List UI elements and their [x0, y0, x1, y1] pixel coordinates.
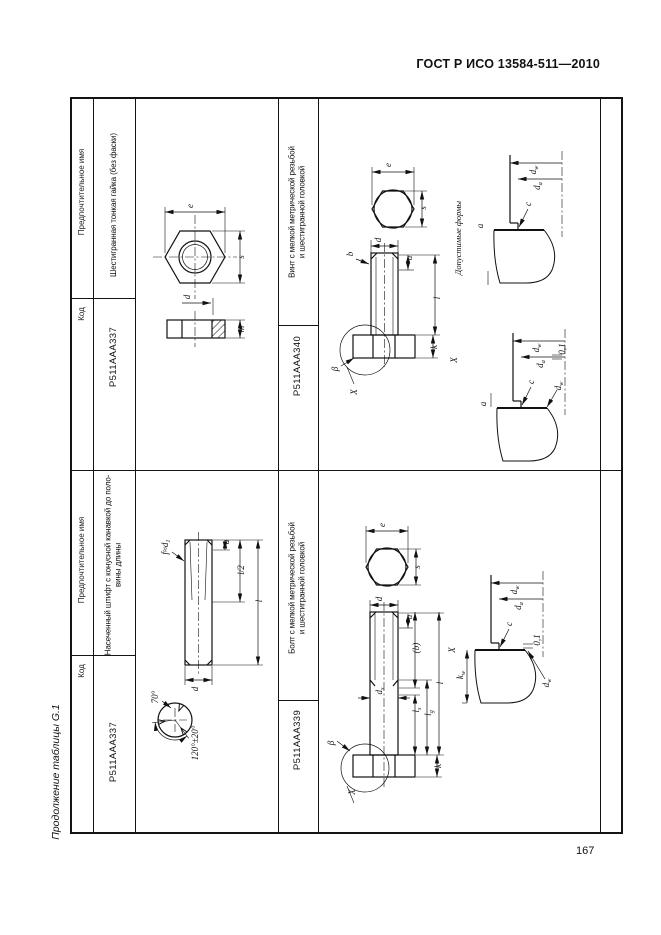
- figure-label: l: [432, 296, 442, 299]
- figure-line: [185, 660, 190, 665]
- figure-label: dw: [528, 165, 540, 175]
- figure-line: [393, 680, 398, 686]
- table-border-bottom: [70, 832, 623, 834]
- figure-label: l: [435, 681, 445, 684]
- figure-label: 120°±20°: [190, 725, 200, 760]
- figure-label: u: [404, 614, 414, 619]
- column-header-code: Код: [77, 664, 87, 678]
- item-name-pin: Насеченный штифт с конусной канавкой до …: [104, 475, 125, 656]
- figure-label: ds: [374, 687, 386, 695]
- figure-label: c: [526, 380, 536, 384]
- item-code-screw: P511AAA340: [292, 336, 304, 396]
- figure-label: X: [449, 357, 459, 364]
- table-grid-line: [600, 97, 601, 833]
- column-header-code: Код: [77, 307, 87, 321]
- item-name-screw: Винт с мелкой метрической резьбой и шест…: [288, 146, 309, 278]
- figure-label: d: [373, 237, 383, 242]
- figure-label: lg: [423, 709, 435, 716]
- figure-label: X: [447, 647, 457, 654]
- table-grid-line: [278, 325, 319, 326]
- table-grid-line: [70, 298, 136, 299]
- figure-label: m: [236, 325, 246, 332]
- figure-line: [190, 542, 192, 600]
- figure-label: l: [254, 599, 264, 602]
- figure-label: dw: [531, 343, 543, 353]
- item-code-bolt: P511AAA339: [292, 710, 304, 770]
- figure-label: b: [345, 251, 355, 256]
- figure-label: l/2: [236, 565, 246, 575]
- figure-label: X: [347, 789, 357, 796]
- figure-label: dw: [553, 381, 565, 391]
- figure-label: e: [383, 163, 393, 167]
- figure-label: s: [412, 565, 422, 569]
- figure-line: [347, 367, 354, 384]
- column-header-name: Предпочтительное имя: [77, 149, 87, 235]
- figure-label: 70°: [150, 690, 160, 703]
- figure-label: X: [349, 389, 359, 396]
- figure-label: (b): [411, 643, 421, 654]
- table-border-left: [70, 97, 72, 834]
- figure-label: Допустимые формы: [453, 201, 463, 276]
- figure-label: da: [513, 602, 525, 610]
- figure-label: k: [433, 763, 443, 768]
- grooved-pin-drawing: f≈d1al/2ld70°120°±20°: [136, 471, 278, 832]
- hex-bolt-drawing: esdu(b)lslglkdsβXXdwdackw0,1dw: [319, 471, 600, 832]
- document-page: ГОСТ Р ИСО 13584-511—2010 167 Продолжени…: [0, 0, 661, 935]
- figure-line: [207, 660, 212, 665]
- item-code-pin: P511AAA337: [108, 722, 120, 782]
- table-grid-line: [278, 97, 279, 833]
- figure-label: s: [418, 206, 428, 210]
- figure-label: f≈d1: [160, 539, 172, 554]
- figure-label: β: [326, 740, 336, 746]
- figure-label: kw: [455, 670, 467, 679]
- item-code-nut: P511AAA337: [108, 327, 120, 387]
- item-name-nut: Шестигранная тонкая гайка (без фаски): [109, 133, 119, 277]
- figure-label: k: [429, 344, 439, 349]
- figure-label: a: [475, 223, 485, 228]
- standard-reference: ГОСТ Р ИСО 13584-511—2010: [416, 57, 600, 71]
- figure-label: d: [182, 294, 192, 299]
- figure-label: e: [377, 523, 387, 527]
- figure-label: dw: [509, 585, 521, 595]
- figure-line: [205, 542, 207, 600]
- figure-label: a: [478, 401, 488, 406]
- figure-label: da: [535, 360, 547, 368]
- figure-label: β: [330, 366, 340, 372]
- figure-label: da: [532, 182, 544, 190]
- table-grid-line: [93, 97, 94, 833]
- table-border-right: [621, 97, 623, 834]
- figure-label: s: [236, 255, 246, 259]
- figure-line: [370, 680, 375, 686]
- figure-label: 0,1: [532, 634, 542, 645]
- figure-label: c: [504, 622, 514, 626]
- figure-label: d: [374, 596, 384, 601]
- column-header-name: Предпочтительное имя: [77, 517, 87, 603]
- hex-thin-nut-drawing: esmd: [136, 96, 278, 469]
- item-name-bolt: Болт с мелкой метрической резьбой и шест…: [288, 522, 309, 654]
- figure-label: e: [185, 204, 195, 208]
- figure-label: dw: [541, 678, 553, 688]
- page-number: 167: [576, 845, 594, 857]
- figure-label: c: [523, 202, 533, 206]
- figure-label: u: [404, 255, 414, 260]
- hex-screw-drawing: esdublkβXXДопустимые формыdwdacadwdaca0,…: [319, 96, 600, 469]
- figure-label: 0,1: [557, 343, 567, 354]
- figure-line: [185, 540, 190, 545]
- table-continuation-note: Продолжение таблицы G.1: [50, 704, 64, 840]
- figure-line: [207, 540, 212, 545]
- figure-label: d: [190, 686, 200, 691]
- table-grid-line: [278, 700, 319, 701]
- figure-label: a: [221, 539, 231, 544]
- figure-label: ls: [411, 707, 423, 713]
